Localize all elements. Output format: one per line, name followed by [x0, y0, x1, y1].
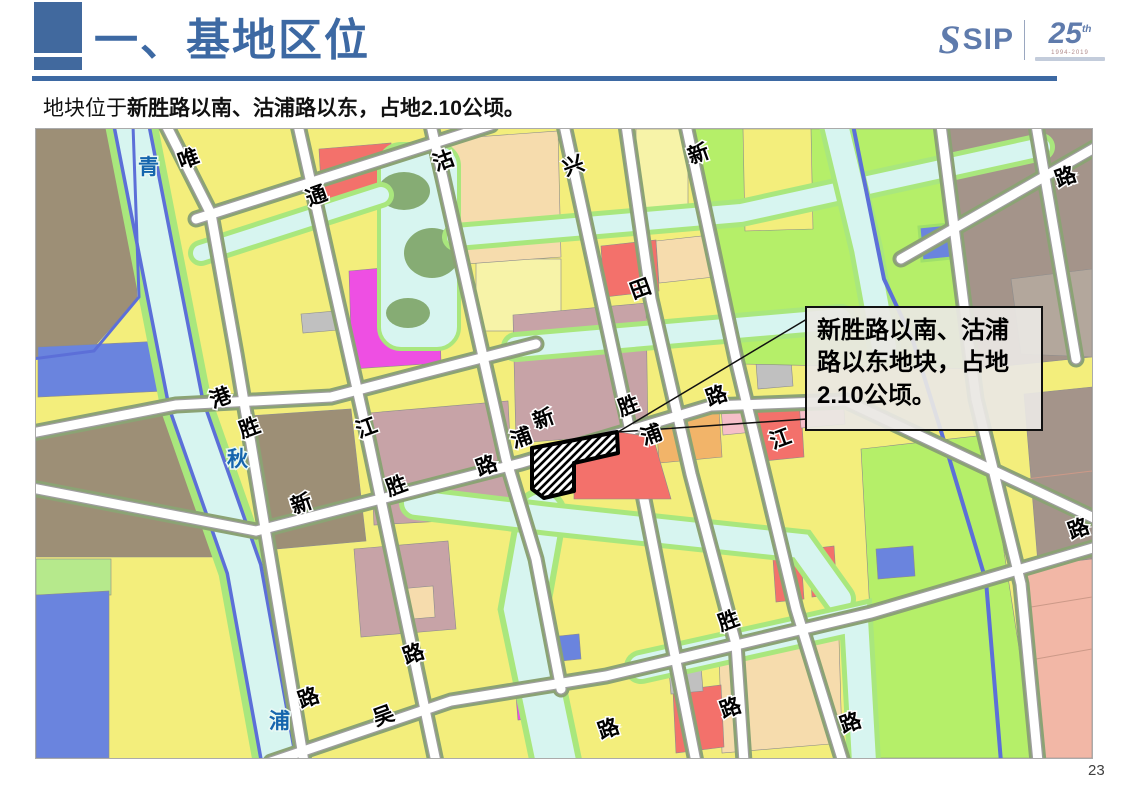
- site-callout-box: 新胜路以南、沽浦 路以东地块，占地 2.10公顷。: [805, 306, 1043, 431]
- anniversary-years: 1994-2019: [1051, 49, 1089, 57]
- logo-divider: [1024, 20, 1025, 60]
- title-accent-bar: [34, 57, 82, 70]
- parcel-blue: [36, 591, 109, 758]
- water-label: 青: [138, 156, 159, 179]
- title-underline: [32, 76, 1057, 81]
- subtitle: 地块位于新胜路以南、沽浦路以东，占地2.10公顷。: [43, 92, 525, 122]
- parcel-blue: [876, 546, 915, 579]
- parcel-lightgreen: [36, 559, 111, 595]
- sip-anniversary-logo: S SIP 25th 1994-2019: [938, 14, 1105, 66]
- subtitle-prefix: 地块位于: [43, 97, 127, 120]
- parcel-blue: [38, 341, 166, 397]
- page-title: 一、基地区位: [94, 4, 370, 68]
- water-label: 浦: [269, 709, 290, 733]
- anniversary-fineprint-illegible: [1035, 57, 1105, 61]
- title-accent-square: [34, 2, 82, 53]
- subtitle-bold: 新胜路以南、沽浦路以东，占地2.10公顷。: [127, 97, 525, 120]
- anniversary-number: 25th: [1049, 19, 1092, 49]
- callout-line: 新胜路以南、沽浦: [817, 315, 1031, 347]
- pond-island: [386, 298, 430, 328]
- callout-line: 2.10公顷。: [817, 380, 1031, 412]
- sip-wordmark: SIP: [963, 23, 1014, 57]
- land-use-map: 唯通沽兴新路田港胜江新胜路浦新胜路浦江路路吴路路胜路路 青秋浦 新胜路以南、沽浦…: [35, 128, 1093, 759]
- water-label: 秋: [227, 448, 249, 471]
- page-number: 23: [1088, 762, 1105, 779]
- map-canvas: 唯通沽兴新路田港胜江新胜路浦新胜路浦江路路吴路路胜路路 青秋浦: [36, 129, 1092, 758]
- callout-line: 路以东地块，占地: [817, 347, 1031, 379]
- sip-swirl-icon: S: [938, 20, 960, 60]
- anniversary-mark: 25th 1994-2019: [1035, 19, 1105, 61]
